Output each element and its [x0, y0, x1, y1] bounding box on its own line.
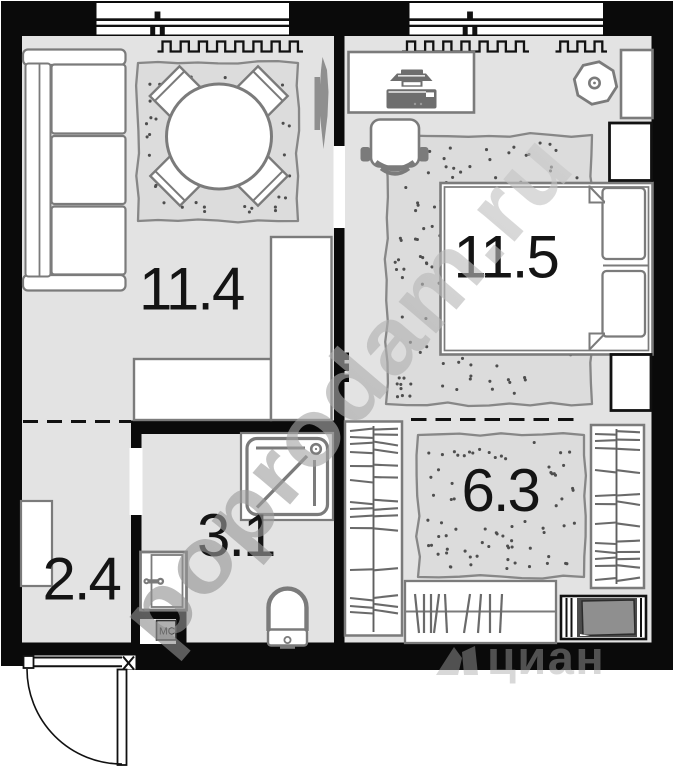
svg-text:6.3: 6.3	[462, 457, 539, 524]
svg-text:11.4: 11.4	[139, 256, 244, 323]
svg-text:циан: циан	[487, 631, 605, 684]
